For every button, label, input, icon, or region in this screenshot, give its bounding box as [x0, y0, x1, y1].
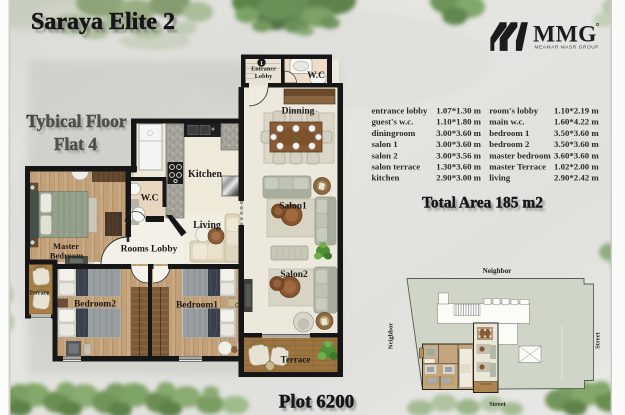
svg-text:3.50*3.60 m: 3.50*3.60 m — [554, 128, 599, 138]
svg-text:Living: Living — [193, 220, 221, 231]
svg-text:Neighbor: Neighbor — [388, 323, 395, 349]
svg-text:3.00*3.60 m: 3.00*3.60 m — [436, 139, 481, 149]
svg-text:3.00*3.60 m: 3.00*3.60 m — [436, 128, 481, 138]
svg-text:Kitchen: Kitchen — [188, 169, 222, 180]
svg-text:Bedroom2: Bedroom2 — [74, 300, 116, 310]
svg-text:room's lobby: room's lobby — [489, 106, 539, 116]
svg-text:Neighbor: Neighbor — [483, 267, 513, 275]
svg-text:entrance lobby: entrance lobby — [372, 106, 429, 116]
svg-text:3.50*3.60 m: 3.50*3.60 m — [554, 139, 599, 149]
svg-text:Total Area 185 m2: Total Area 185 m2 — [422, 195, 543, 212]
svg-text:2.90*2.42 m: 2.90*2.42 m — [554, 173, 599, 183]
svg-text:MEAMAR MASR GROUP: MEAMAR MASR GROUP — [535, 44, 600, 50]
svg-text:1.02*2.00 m: 1.02*2.00 m — [554, 162, 599, 172]
svg-text:Street: Street — [489, 401, 507, 408]
svg-text:Dinning: Dinning — [282, 107, 315, 117]
svg-text:master Terrace: master Terrace — [489, 162, 546, 172]
svg-text:master bedroom: master bedroom — [489, 150, 551, 160]
svg-text:guest's w.c.: guest's w.c. — [372, 117, 414, 127]
svg-text:Entrance: Entrance — [251, 66, 276, 73]
svg-text:salon terrace: salon terrace — [372, 162, 421, 172]
svg-text:Terrace: Terrace — [281, 355, 311, 365]
svg-text:Plot 6200: Plot 6200 — [279, 392, 354, 413]
svg-text:Salon2: Salon2 — [280, 270, 308, 280]
svg-text:1.60*4.22 m: 1.60*4.22 m — [554, 117, 599, 127]
svg-text:Saraya Elite 2: Saraya Elite 2 — [31, 9, 175, 35]
svg-text:1.30*3.60 m: 1.30*3.60 m — [436, 162, 481, 172]
svg-text:Master: Master — [53, 241, 79, 251]
svg-text:salon 1: salon 1 — [372, 139, 398, 149]
svg-text:1.07*1.30 m: 1.07*1.30 m — [436, 106, 481, 116]
svg-text:MMG: MMG — [533, 22, 597, 48]
svg-text:living: living — [489, 173, 511, 183]
svg-text:diningroom: diningroom — [372, 128, 417, 138]
svg-text:W.C: W.C — [307, 71, 325, 81]
svg-text:Lobby: Lobby — [255, 73, 273, 80]
svg-text:Salon1: Salon1 — [279, 202, 307, 212]
svg-text:bedroom 1: bedroom 1 — [489, 128, 529, 138]
svg-text:3.60*3.60 m: 3.60*3.60 m — [554, 150, 599, 160]
svg-text:bedroom 2: bedroom 2 — [489, 139, 530, 149]
svg-text:1.10*2.19 m: 1.10*2.19 m — [554, 106, 599, 116]
svg-text:Bedroom: Bedroom — [50, 251, 83, 261]
svg-text:W.C: W.C — [141, 194, 159, 204]
svg-text:Bedroom1: Bedroom1 — [176, 301, 218, 311]
svg-text:Rooms Lobby: Rooms Lobby — [121, 245, 178, 255]
svg-text:Terrace: Terrace — [29, 290, 50, 297]
svg-text:Street: Street — [595, 331, 602, 349]
svg-text:2.90*3.00 m: 2.90*3.00 m — [436, 173, 481, 183]
svg-text:3.00*3.56 m: 3.00*3.56 m — [436, 150, 481, 160]
svg-text:kitchen: kitchen — [372, 173, 400, 183]
svg-text:salon 2: salon 2 — [372, 150, 399, 160]
svg-text:main w.c.: main w.c. — [489, 117, 524, 127]
svg-text:1.10*1.80 m: 1.10*1.80 m — [436, 117, 481, 127]
